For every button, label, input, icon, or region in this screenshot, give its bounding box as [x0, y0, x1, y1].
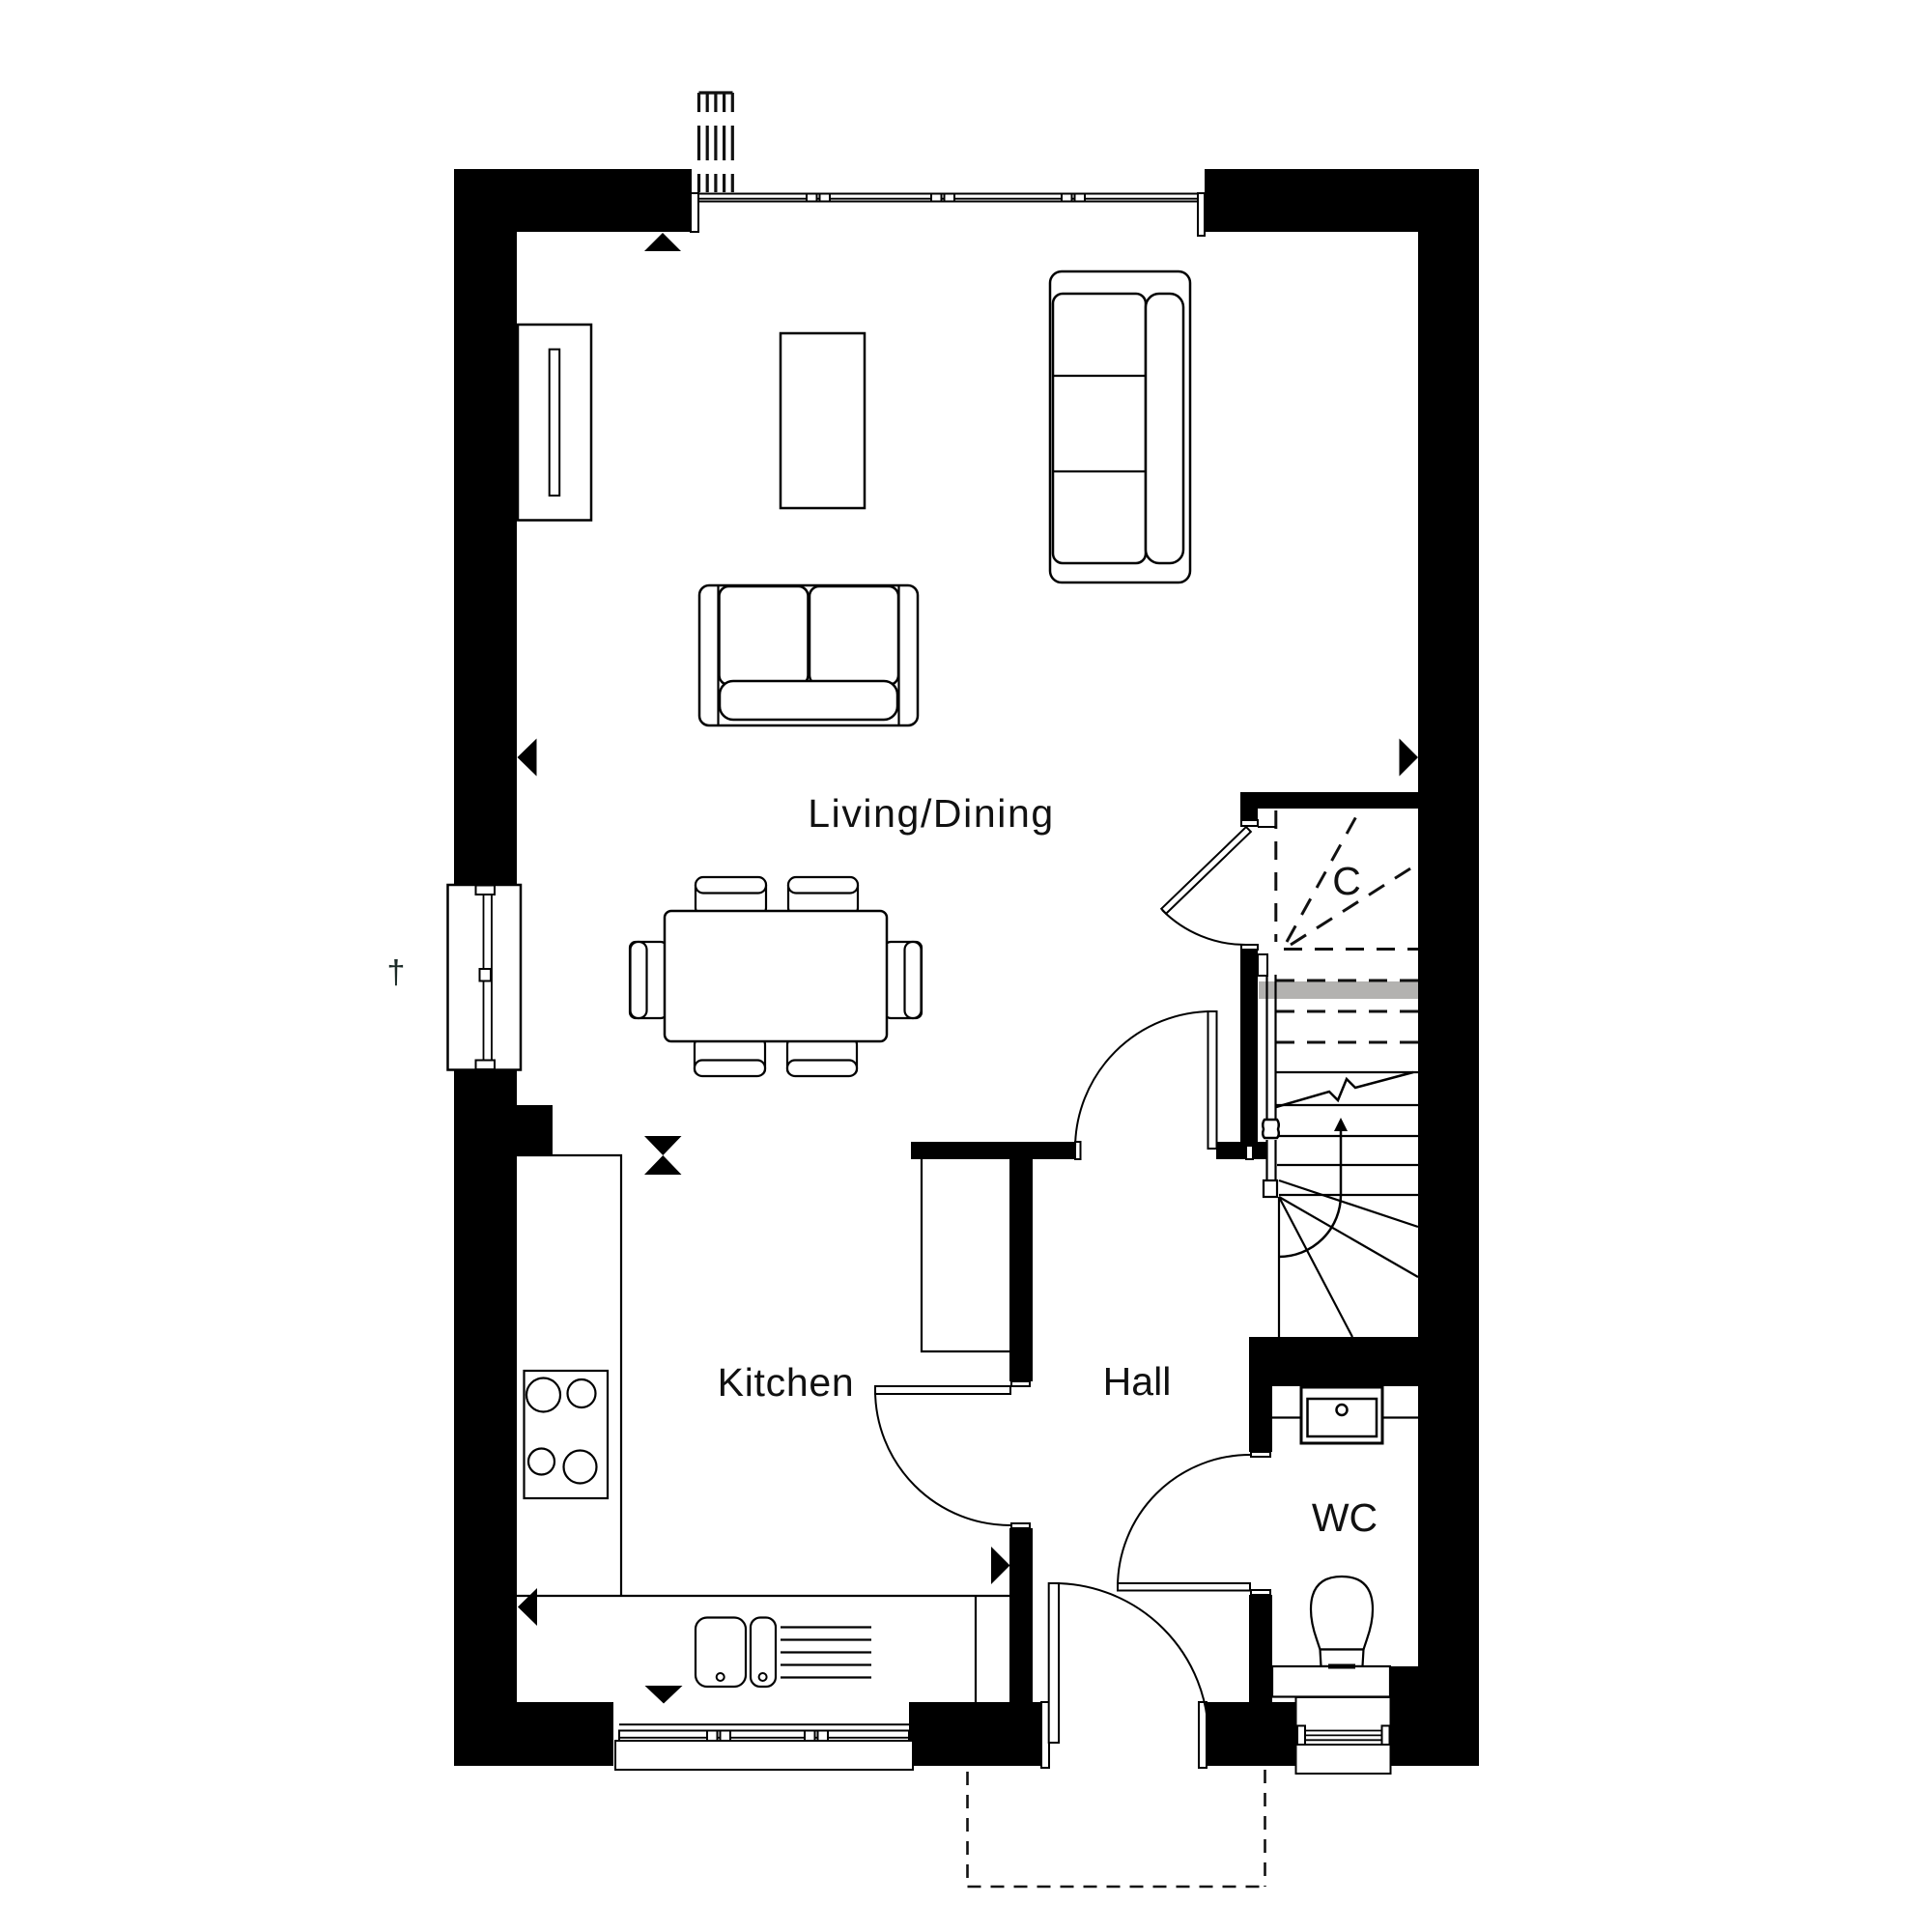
svg-text:Living/Dining: Living/Dining	[808, 791, 1055, 836]
svg-text:Kitchen: Kitchen	[718, 1360, 855, 1405]
svg-text:Hall: Hall	[1103, 1359, 1172, 1404]
svg-text:†: †	[387, 954, 406, 991]
svg-text:WC: WC	[1312, 1495, 1378, 1540]
svg-text:C: C	[1332, 859, 1361, 903]
